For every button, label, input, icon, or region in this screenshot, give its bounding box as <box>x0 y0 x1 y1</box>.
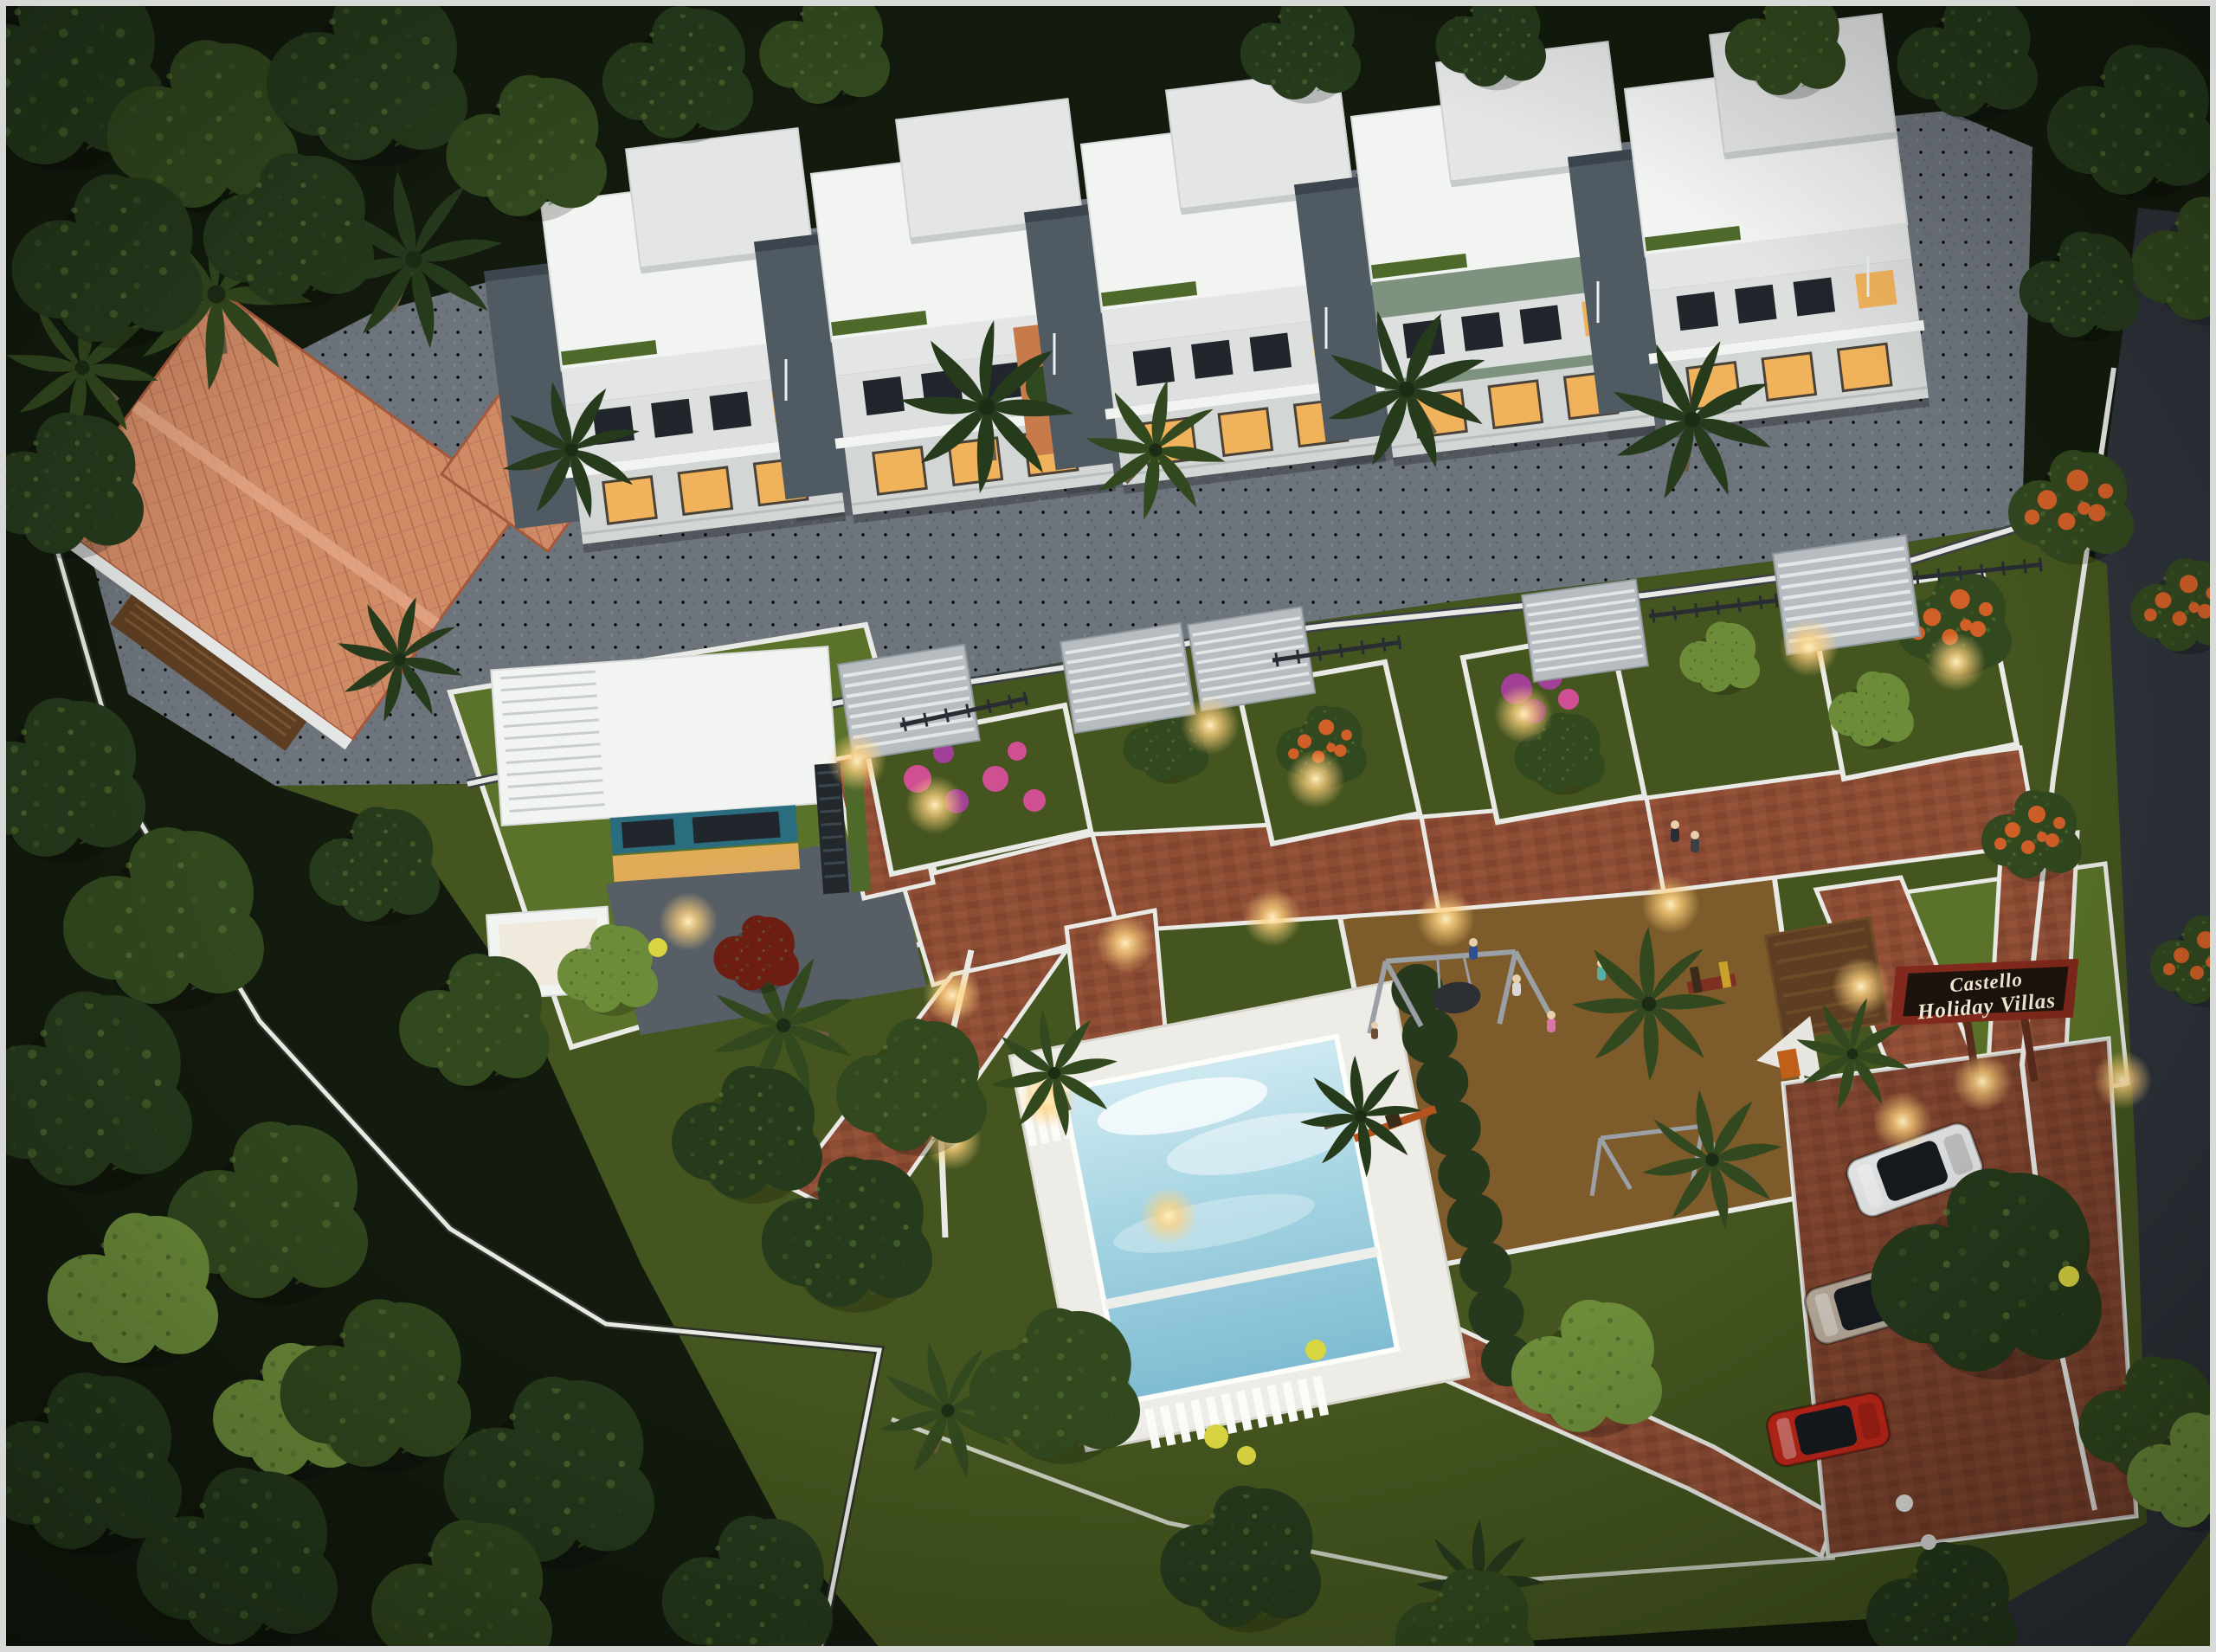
resort-masterplan-scene: Castello Holiday Villas <box>0 0 2216 1652</box>
aerial-render: Castello Holiday Villas <box>0 0 2216 1652</box>
dusk-vignette <box>0 0 2216 1652</box>
